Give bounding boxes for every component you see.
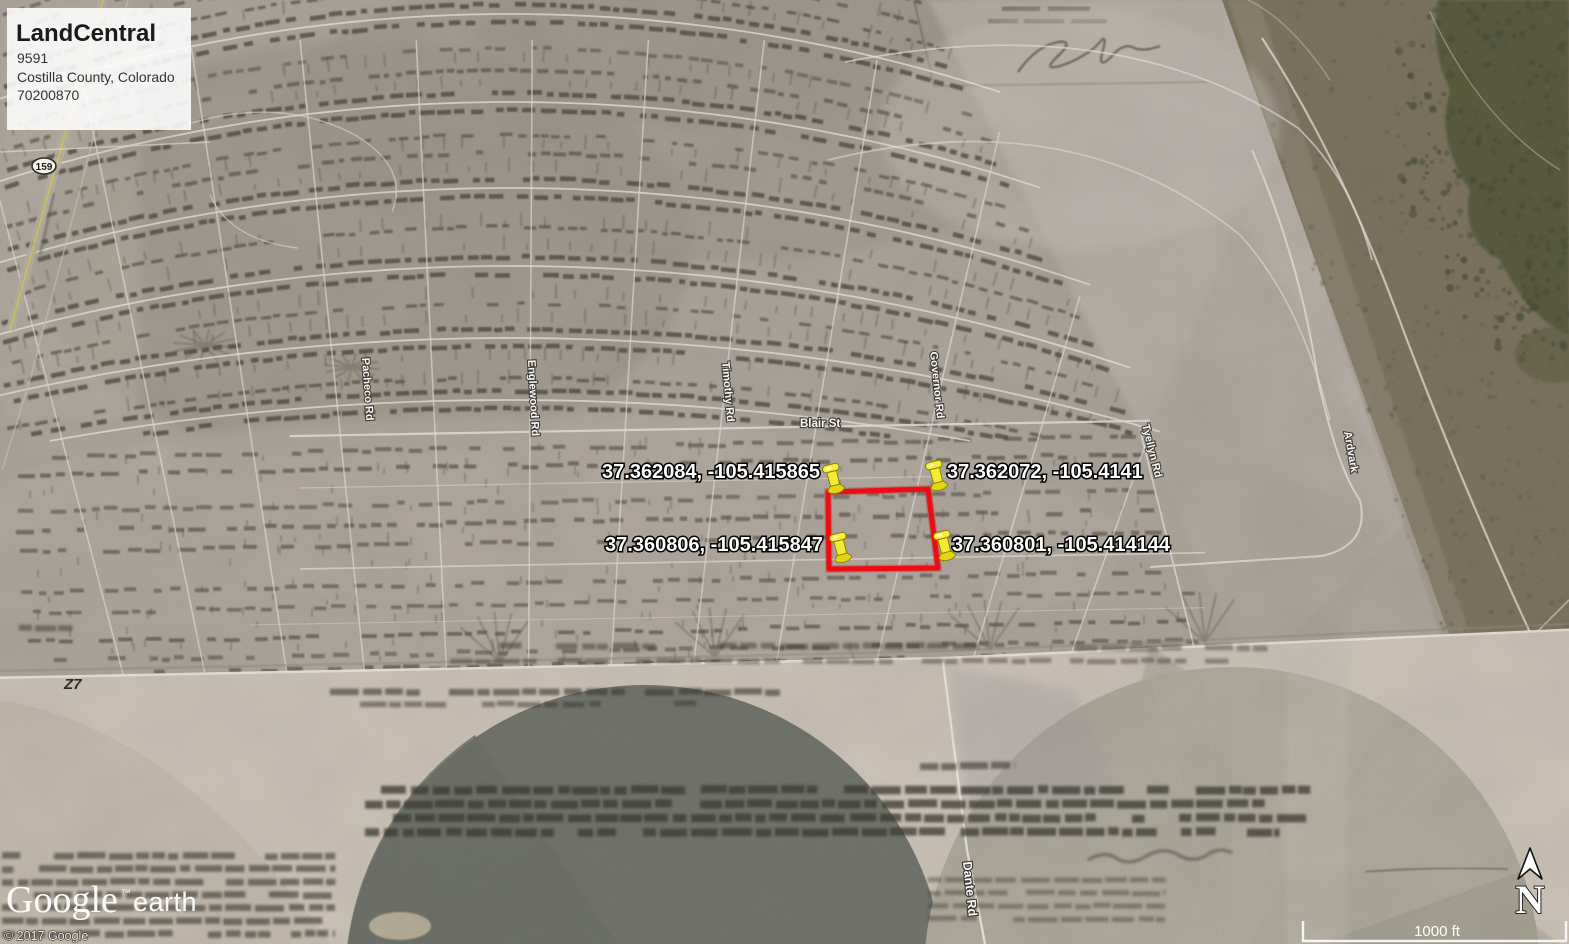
svg-text:Costilla County, Colorado: Costilla County, Colorado xyxy=(17,69,175,85)
svg-text:159: 159 xyxy=(36,162,53,173)
svg-text:37.362072, -105.4141: 37.362072, -105.4141 xyxy=(947,461,1143,483)
svg-text:1000 ft: 1000 ft xyxy=(1414,923,1461,940)
svg-text:Z7: Z7 xyxy=(63,676,82,693)
svg-text:Google: Google xyxy=(6,879,118,921)
svg-text:earth: earth xyxy=(133,887,197,917)
svg-text:9591: 9591 xyxy=(17,50,48,66)
svg-text:© 2017 Google: © 2017 Google xyxy=(4,929,88,943)
svg-text:N: N xyxy=(1516,877,1545,922)
svg-text:37.360801, -105.414144: 37.360801, -105.414144 xyxy=(952,534,1171,556)
svg-text:70200870: 70200870 xyxy=(17,87,80,103)
svg-text:Blair St: Blair St xyxy=(800,418,840,430)
svg-text:37.362084, -105.415865: 37.362084, -105.415865 xyxy=(602,461,820,483)
svg-text:37.360806, -105.415847: 37.360806, -105.415847 xyxy=(605,534,823,556)
svg-text:LandCentral: LandCentral xyxy=(16,20,156,47)
svg-text:™: ™ xyxy=(121,888,131,899)
